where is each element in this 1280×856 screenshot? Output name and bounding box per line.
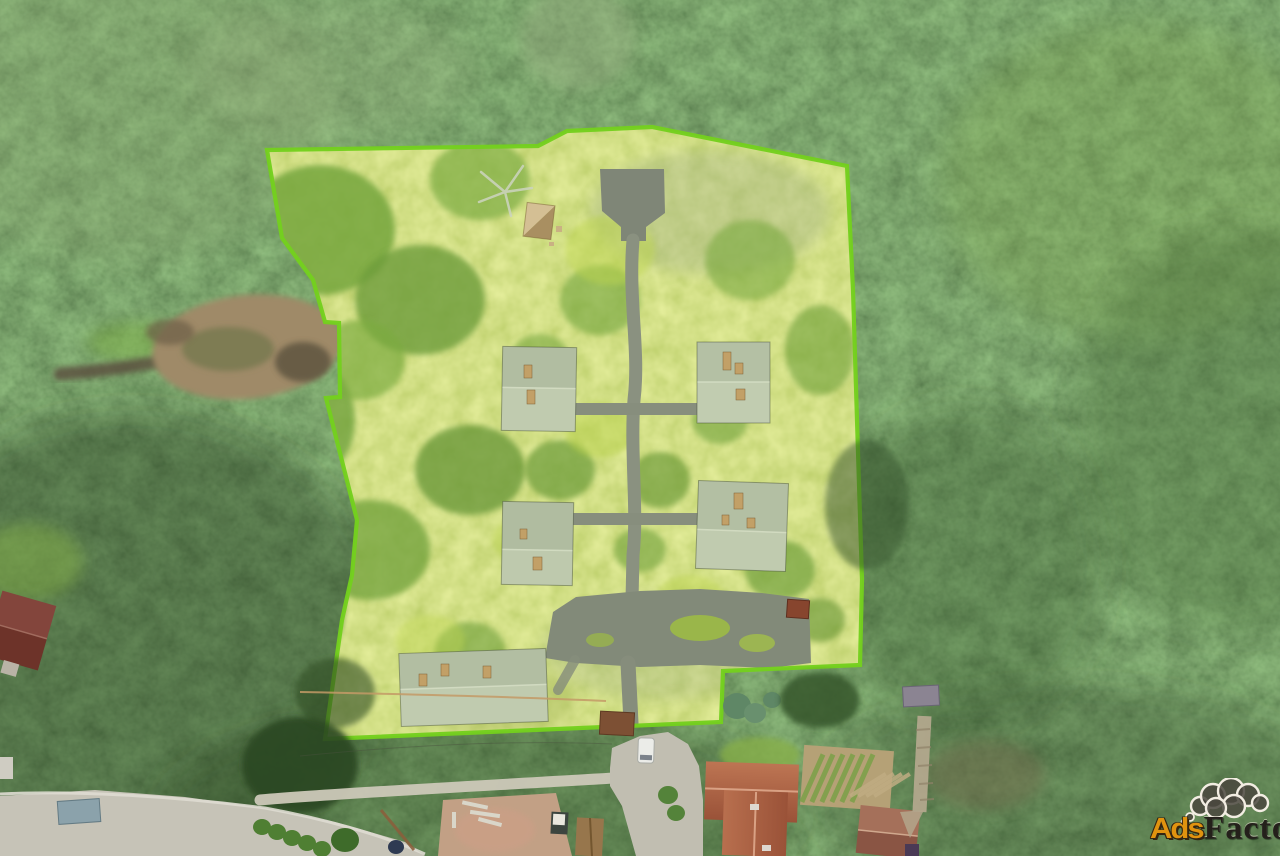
tree-overhang — [825, 440, 909, 570]
aerial-photo-page: { "watermark": { "part1": "Ads", "part2"… — [0, 0, 1280, 856]
chimney — [723, 352, 731, 370]
shed-debris — [556, 226, 562, 232]
tractor-cab — [553, 814, 566, 826]
big-house-chimney — [762, 845, 771, 851]
roadside-bush — [658, 786, 678, 804]
pad-grass-island — [739, 634, 775, 652]
chimney — [735, 363, 743, 374]
wood-deck — [599, 711, 634, 736]
dirt-mud-patch — [146, 319, 194, 345]
white-structure — [0, 757, 13, 779]
lumber-debris — [452, 812, 456, 828]
hedge-bush-large — [331, 828, 359, 852]
building-roof-lower — [695, 529, 786, 571]
building-roof-lower — [400, 684, 548, 726]
building-roof-upper — [502, 346, 577, 388]
aerial-photo-scene — [0, 0, 1280, 856]
building-roof-lower — [697, 382, 770, 423]
chimney — [736, 389, 745, 400]
chimney — [533, 557, 542, 570]
chimney — [527, 390, 535, 404]
forest-tint-sage — [190, 0, 470, 140]
chimney — [524, 365, 532, 378]
white-van-windshield — [640, 755, 652, 760]
building-roof-lower — [501, 387, 576, 431]
chimney — [734, 493, 743, 509]
dirt-mud-patch — [275, 342, 331, 382]
building-roof-upper — [502, 501, 574, 550]
chimney — [483, 666, 491, 678]
shed-debris — [549, 242, 554, 246]
dirt-turnaround-island — [182, 327, 274, 371]
central-path — [632, 240, 636, 600]
chimney — [520, 529, 527, 539]
interior-trees — [785, 305, 855, 395]
big-house-chimney — [750, 804, 759, 810]
roadside-bush — [667, 805, 685, 821]
pad-grass-island — [670, 615, 730, 641]
chimney — [419, 674, 427, 686]
pad-grass-island — [586, 633, 614, 647]
building-roof-upper — [697, 342, 770, 382]
barrel — [388, 840, 404, 854]
interior-trees — [430, 140, 530, 220]
trampoline — [57, 799, 101, 825]
dry-ground-patch — [925, 740, 1045, 810]
chimney — [747, 518, 755, 528]
gray-shed — [903, 685, 940, 707]
blue-spruce — [763, 692, 781, 708]
blue-spruce — [744, 703, 766, 723]
purple-car — [905, 844, 919, 856]
interior-trees — [705, 220, 795, 300]
tree-clump — [780, 672, 860, 728]
brown-shed — [786, 599, 809, 618]
chimney — [722, 515, 729, 525]
chimney — [441, 664, 449, 676]
